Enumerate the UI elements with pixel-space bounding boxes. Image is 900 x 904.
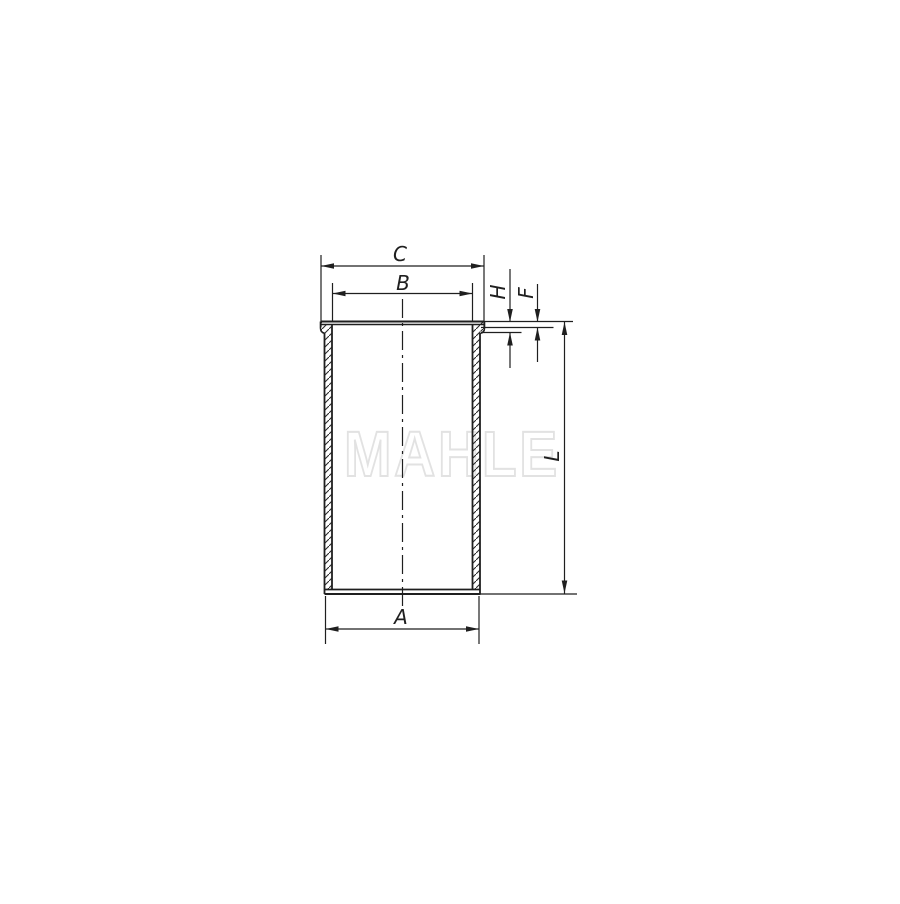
arrowhead-right-icon	[471, 263, 484, 269]
dimension-label-f: F	[514, 287, 538, 299]
mahle-watermark: MAHLE	[344, 418, 560, 490]
dimension-l: L	[540, 322, 567, 594]
arrowhead-left-icon	[326, 626, 339, 632]
dimension-label-h: H	[486, 284, 510, 299]
arrowhead-left-icon	[321, 263, 334, 269]
dimension-f: F	[514, 284, 540, 362]
arrowhead-down-icon	[562, 581, 568, 594]
arrowhead-up-icon	[535, 328, 541, 341]
arrowhead-down-icon	[507, 309, 513, 322]
dimension-label-c: C	[393, 242, 407, 266]
dimension-label-l: L	[540, 450, 564, 461]
arrowhead-down-icon	[535, 309, 541, 322]
dimension-label-b: B	[396, 271, 410, 295]
arrowhead-up-icon	[507, 333, 513, 346]
arrowhead-right-icon	[466, 626, 479, 632]
liner-wall-left-hatch	[325, 325, 333, 590]
cylinder-liner-drawing: MAHLE	[0, 0, 900, 900]
product-technical-drawing: MAHLE	[0, 0, 900, 900]
arrowhead-right-icon	[460, 291, 473, 297]
dimension-h: H	[486, 269, 513, 368]
arrowhead-left-icon	[333, 291, 346, 297]
arrowhead-up-icon	[562, 322, 568, 335]
dimension-label-a: A	[392, 605, 408, 629]
liner-wall-right-hatch	[473, 325, 481, 590]
